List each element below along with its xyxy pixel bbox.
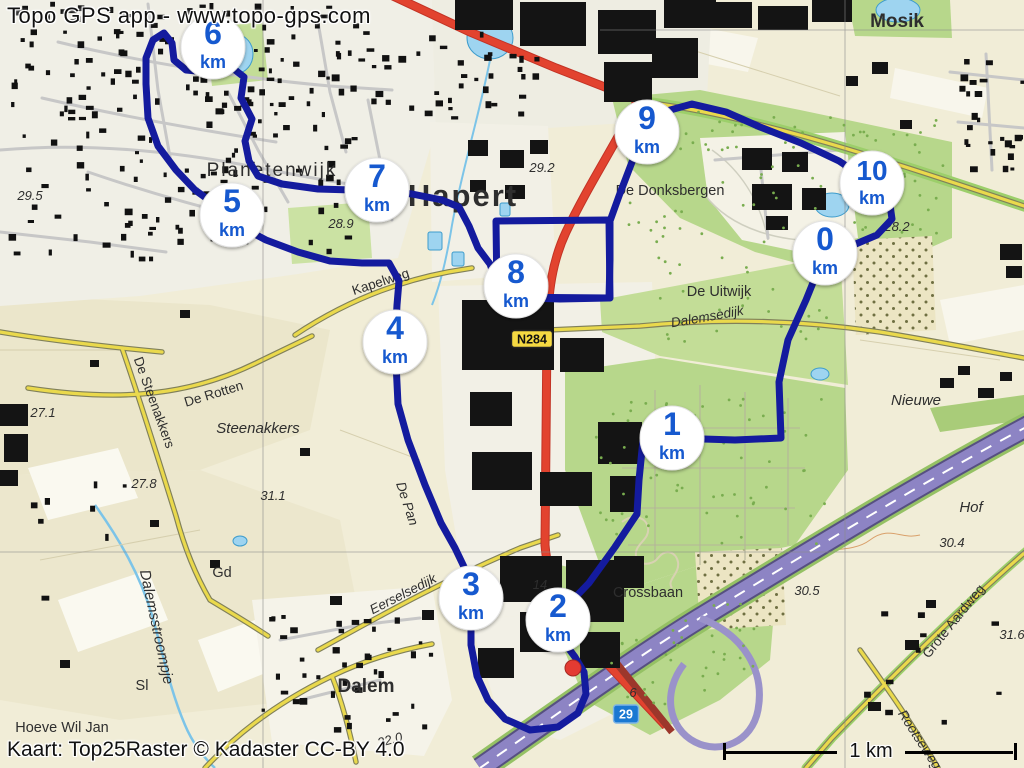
km-marker-10[interactable]: 10km xyxy=(840,151,904,215)
road-shield-N284: N284 xyxy=(512,331,553,348)
km-marker-unit: km xyxy=(812,258,838,278)
km-marker-value: 9 xyxy=(638,100,656,136)
km-marker-value: 7 xyxy=(368,158,386,194)
km-marker-2[interactable]: 2km xyxy=(526,588,590,652)
km-marker-value: 2 xyxy=(549,588,567,624)
km-marker-unit: km xyxy=(545,625,571,645)
scale-bar-label: 1 km xyxy=(835,740,907,763)
app-credit-text: Topo GPS app - www.topo-gps.com xyxy=(7,3,371,29)
map-label: De Donksbergen xyxy=(616,183,725,199)
km-marker-value: 10 xyxy=(856,155,887,186)
map-label: 6 xyxy=(629,685,637,700)
map-label: De Uitwijk xyxy=(687,284,752,300)
km-marker-9[interactable]: 9km xyxy=(615,100,679,164)
km-marker-unit: km xyxy=(659,443,685,463)
topo-gps-map-view[interactable]: HapertPlanetenwijkMosikDalemDe Donksberg… xyxy=(0,0,1024,768)
route-waypoint-dot[interactable] xyxy=(565,660,581,676)
road-shield-text: 29 xyxy=(619,708,633,722)
road-shield-29: 29 xyxy=(614,705,639,723)
map-label: 27.1 xyxy=(29,405,55,420)
map-label: Nieuwe xyxy=(891,392,941,409)
map-label: 27.8 xyxy=(130,476,157,491)
km-marker-3[interactable]: 3km xyxy=(439,566,503,630)
km-marker-0[interactable]: 0km xyxy=(793,221,857,285)
km-marker-value: 5 xyxy=(223,183,241,219)
map-label: Hof xyxy=(959,499,984,516)
km-marker-value: 4 xyxy=(386,310,404,346)
km-marker-unit: km xyxy=(382,347,408,367)
map-label: 29.5 xyxy=(16,188,43,203)
map-label: 30.4 xyxy=(939,535,964,550)
km-marker-value: 3 xyxy=(462,566,480,602)
map-label: Hoeve Wil Jan xyxy=(15,720,108,736)
km-marker-unit: km xyxy=(634,137,660,157)
map-label: Sl xyxy=(136,678,149,694)
map-label: 30.5 xyxy=(794,583,820,598)
map-label: 28.9 xyxy=(327,216,353,231)
km-marker-8[interactable]: 8km xyxy=(484,254,548,318)
map-label: Dalem xyxy=(337,676,394,697)
km-marker-1[interactable]: 1km xyxy=(640,406,704,470)
km-marker-4[interactable]: 4km xyxy=(363,310,427,374)
map-attribution-text: Kaart: Top25Raster © Kadaster CC-BY 4.0 xyxy=(7,738,405,762)
map-label: 31.1 xyxy=(260,488,285,503)
map-label: Crossbaan xyxy=(613,585,683,601)
km-marker-unit: km xyxy=(859,188,885,208)
map-label: Mosik xyxy=(870,11,924,32)
km-marker-unit: km xyxy=(458,603,484,623)
km-marker-value: 1 xyxy=(663,406,681,442)
scale-bar-right-segment xyxy=(905,751,1013,754)
map-label: Gd xyxy=(212,565,231,581)
map-canvas[interactable]: HapertPlanetenwijkMosikDalemDe Donksberg… xyxy=(0,0,1024,768)
km-marker-unit: km xyxy=(364,195,390,215)
map-label: 14 xyxy=(533,577,547,592)
km-marker-unit: km xyxy=(219,220,245,240)
km-marker-unit: km xyxy=(200,52,226,72)
map-label: 31.6 xyxy=(999,627,1024,642)
road-shield-text: N284 xyxy=(517,333,547,347)
scale-bar: 1 km xyxy=(723,740,1017,766)
scale-bar-right-tick xyxy=(1014,743,1017,760)
map-label: 29.2 xyxy=(528,160,555,175)
km-marker-7[interactable]: 7km xyxy=(345,158,409,222)
km-marker-value: 8 xyxy=(507,254,525,290)
km-marker-unit: km xyxy=(503,291,529,311)
scale-bar-left-segment xyxy=(725,751,837,754)
map-label: Steenakkers xyxy=(216,420,300,437)
km-marker-5[interactable]: 5km xyxy=(200,183,264,247)
km-marker-value: 0 xyxy=(816,221,834,257)
